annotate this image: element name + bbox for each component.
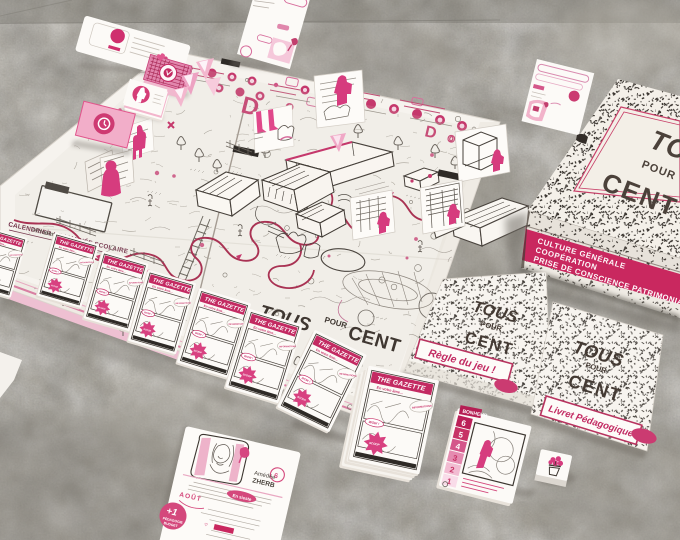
svg-text:INFORMATIONS: INFORMATIONS: [279, 345, 296, 348]
svg-text:INFORMATIONS: INFORMATIONS: [129, 281, 144, 285]
svg-text:INFORMATIONS: INFORMATIONS: [229, 323, 246, 326]
svg-text:INFORMATIONS: INFORMATIONS: [80, 261, 95, 265]
svg-text:INFORMATIONS: INFORMATIONS: [175, 301, 191, 305]
svg-text:INFORMATIONS: INFORMATIONS: [10, 253, 24, 256]
